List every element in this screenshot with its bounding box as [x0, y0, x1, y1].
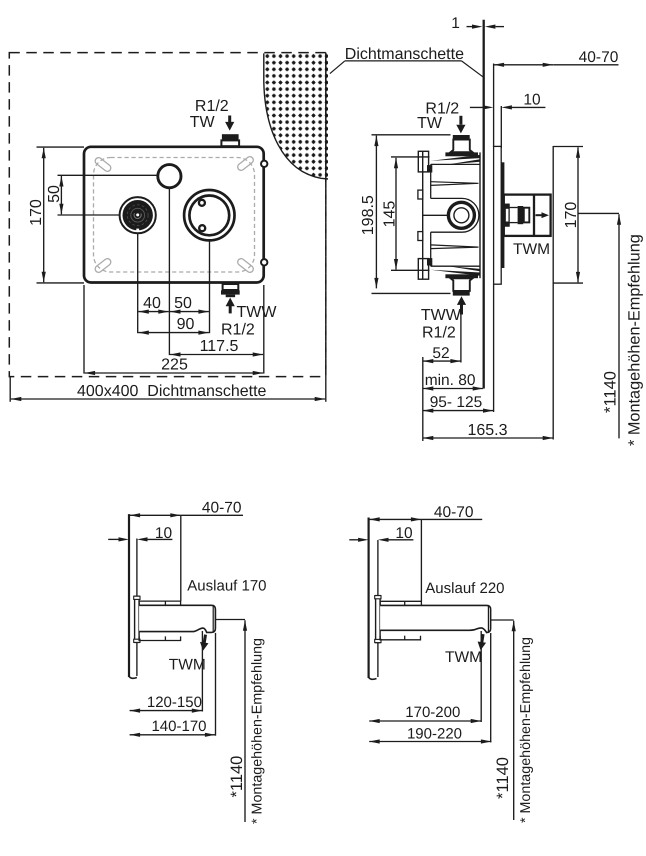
svg-text:190-220: 190-220 — [407, 726, 462, 743]
svg-text:* Montagehöhen-Empfehlung: * Montagehöhen-Empfehlung — [518, 637, 534, 823]
svg-text:170-200: 170-200 — [405, 704, 460, 721]
svg-text:225: 225 — [161, 357, 188, 374]
svg-text:R1/2: R1/2 — [221, 322, 255, 339]
svg-text:* Montagehöhen-Empfehlung: * Montagehöhen-Empfehlung — [250, 638, 266, 824]
svg-text:R1/2: R1/2 — [195, 98, 229, 115]
svg-text:1: 1 — [451, 15, 460, 32]
svg-text:170: 170 — [28, 199, 45, 226]
svg-text:52: 52 — [432, 345, 449, 362]
svg-text:TWW: TWW — [421, 307, 462, 324]
svg-text:*1140: *1140 — [602, 371, 620, 413]
svg-text:145: 145 — [381, 201, 398, 228]
svg-text:*1140: *1140 — [228, 756, 246, 798]
svg-text:95- 125: 95- 125 — [430, 394, 483, 411]
svg-text:10: 10 — [155, 525, 173, 542]
svg-text:*1140: *1140 — [494, 757, 512, 799]
svg-text:TWW: TWW — [237, 304, 278, 321]
svg-text:400x400 Dichtmanschette: 400x400 Dichtmanschette — [77, 383, 267, 400]
svg-text:40: 40 — [143, 295, 161, 312]
svg-text:TW: TW — [417, 115, 443, 132]
svg-text:TW: TW — [190, 114, 216, 131]
svg-text:TWM: TWM — [169, 657, 206, 674]
svg-text:min. 80: min. 80 — [425, 372, 476, 389]
svg-text:40-70: 40-70 — [202, 499, 242, 516]
svg-text:Auslauf 220: Auslauf 220 — [425, 580, 504, 597]
svg-text:10: 10 — [523, 91, 541, 108]
svg-text:50: 50 — [174, 295, 192, 312]
svg-text:165.3: 165.3 — [467, 422, 507, 439]
svg-text:40-70: 40-70 — [579, 49, 619, 66]
svg-text:10: 10 — [395, 525, 413, 542]
svg-text:140-170: 140-170 — [151, 718, 206, 735]
svg-text:198.5: 198.5 — [360, 195, 377, 235]
svg-text:TWM: TWM — [445, 649, 482, 666]
svg-text:40-70: 40-70 — [434, 504, 474, 521]
svg-text:R1/2: R1/2 — [422, 325, 456, 342]
svg-text:117.5: 117.5 — [200, 338, 239, 355]
svg-text:170: 170 — [563, 202, 580, 229]
svg-text:50: 50 — [46, 185, 63, 203]
svg-text:Auslauf 170: Auslauf 170 — [187, 578, 266, 595]
svg-text:TWM: TWM — [513, 241, 550, 258]
svg-text:90: 90 — [177, 316, 195, 333]
svg-text:120-150: 120-150 — [147, 694, 202, 711]
svg-text:* Montagehöhen-Empfehlung: * Montagehöhen-Empfehlung — [626, 234, 644, 446]
